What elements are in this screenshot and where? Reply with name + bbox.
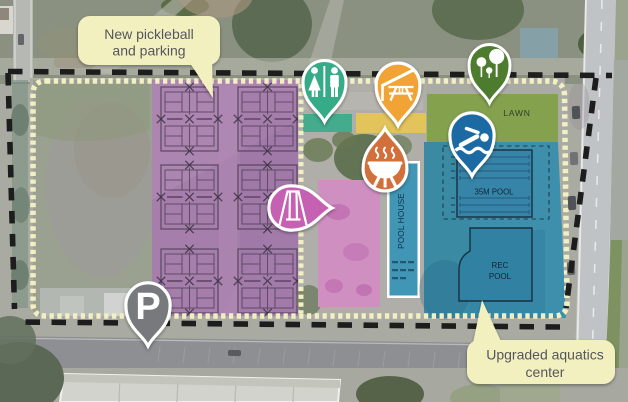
svg-text:35M POOL: 35M POOL bbox=[475, 188, 515, 197]
svg-text:LAWN: LAWN bbox=[503, 108, 530, 118]
svg-text:REC: REC bbox=[492, 261, 509, 270]
svg-text:New pickleball: New pickleball bbox=[104, 26, 193, 42]
svg-text:POOL HOUSE: POOL HOUSE bbox=[397, 193, 406, 249]
svg-text:POOL: POOL bbox=[489, 272, 512, 281]
svg-text:P: P bbox=[135, 286, 160, 328]
svg-text:and parking: and parking bbox=[112, 43, 185, 59]
svg-text:center: center bbox=[526, 364, 565, 380]
svg-text:Upgraded aquatics: Upgraded aquatics bbox=[486, 347, 604, 363]
